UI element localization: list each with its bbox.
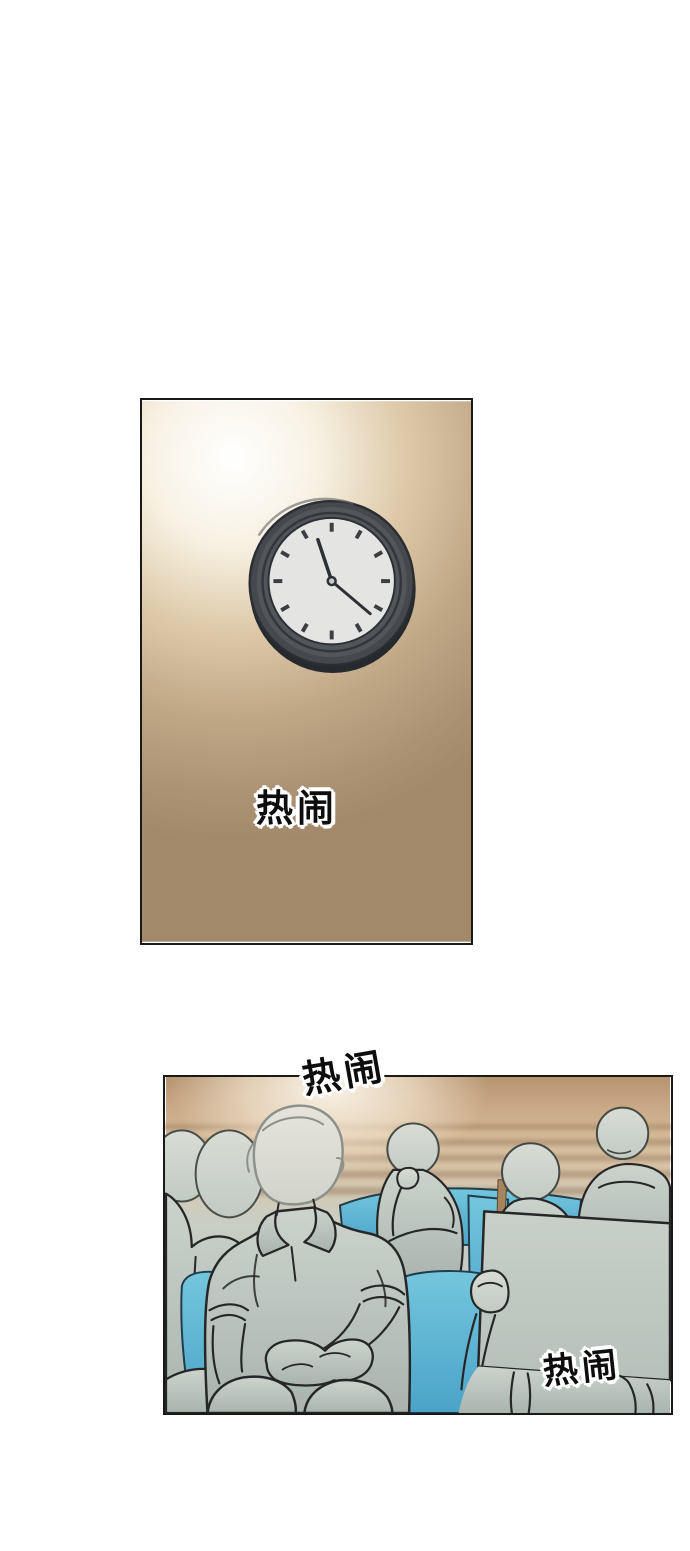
panel-clock-wall <box>140 398 473 945</box>
wall-background <box>142 401 471 941</box>
sfx-noise-panel2-bottom: 热闹 <box>541 1348 622 1391</box>
wall-clock-icon <box>250 499 416 673</box>
person-main-head <box>254 1106 343 1205</box>
gripping-hand <box>471 1271 508 1313</box>
sfx-noise-panel1: 热闹 <box>256 790 338 827</box>
clasped-hands <box>266 1339 373 1385</box>
clock-center-pivot <box>328 577 336 585</box>
comic-page: 热闹 热闹 热闹 <box>0 0 690 1551</box>
clock-wall-scene <box>142 400 471 943</box>
